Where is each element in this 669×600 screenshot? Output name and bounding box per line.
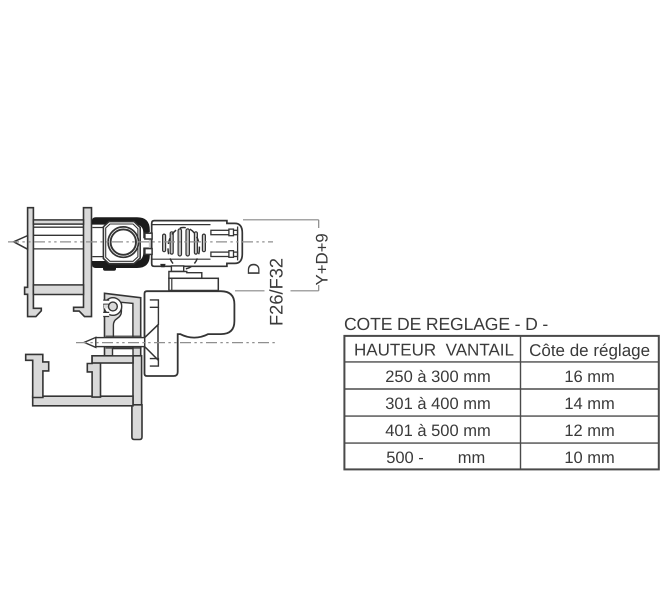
- svg-text:Côte de réglage: Côte de réglage: [529, 341, 650, 360]
- svg-text:301 à 400 mm: 301 à 400 mm: [385, 395, 490, 413]
- svg-text:F26/F32: F26/F32: [266, 258, 287, 326]
- svg-text:D: D: [245, 263, 264, 275]
- svg-text:Y+D+9: Y+D+9: [313, 233, 332, 285]
- svg-text:16 mm: 16 mm: [564, 368, 614, 386]
- svg-text:250 à 300 mm: 250 à 300 mm: [385, 368, 490, 386]
- svg-text:mm: mm: [458, 449, 486, 467]
- svg-text:401 à 500 mm: 401 à 500 mm: [385, 422, 490, 440]
- svg-text:12 mm: 12 mm: [564, 422, 614, 440]
- svg-text:COTE DE REGLAGE - D -: COTE DE REGLAGE - D -: [344, 314, 548, 334]
- svg-text:HAUTEUR VANTAIL: HAUTEUR VANTAIL: [354, 341, 514, 360]
- svg-text:14 mm: 14 mm: [564, 395, 614, 413]
- svg-text:10 mm: 10 mm: [564, 449, 614, 467]
- svg-text:500 -: 500 -: [386, 449, 424, 467]
